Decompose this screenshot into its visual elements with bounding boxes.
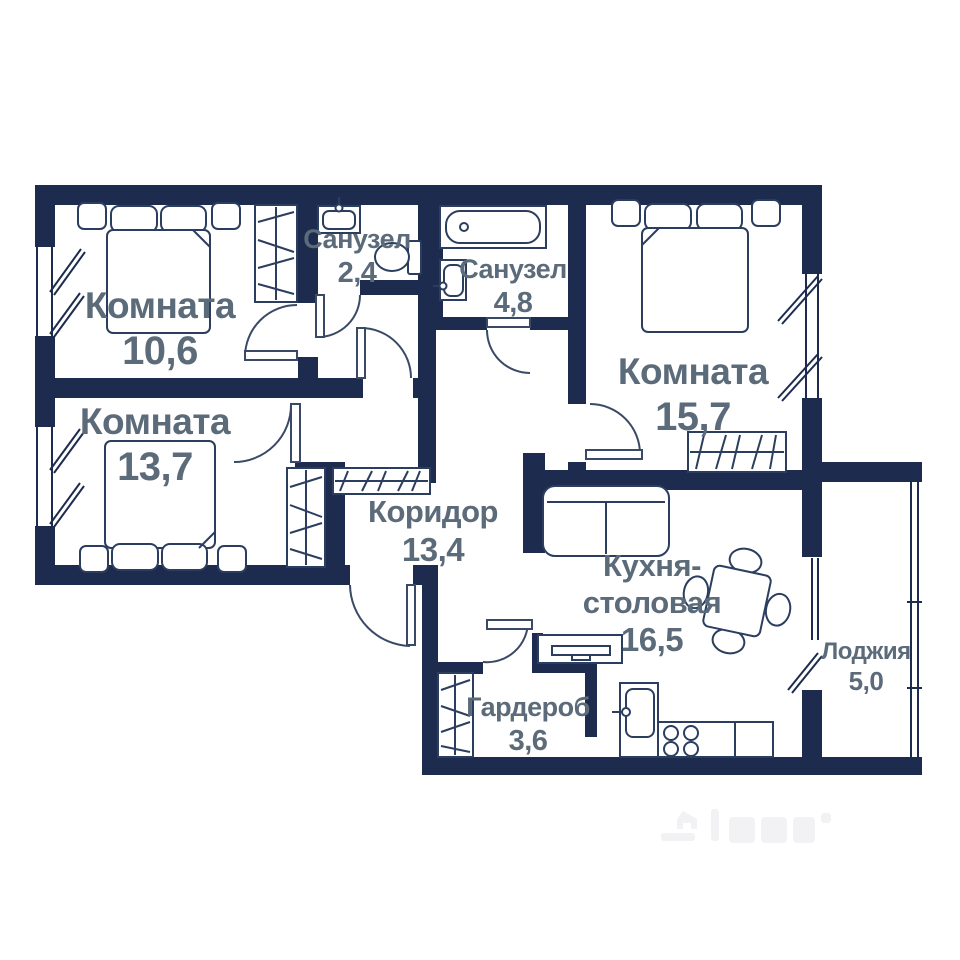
wardrobe-garderob <box>438 673 473 757</box>
wardrobe-room-13-7 <box>287 468 325 567</box>
wardrobe-corridor <box>333 468 430 494</box>
tv-stand <box>538 635 622 663</box>
bathtub-sanuzel-4-8 <box>440 206 546 248</box>
faint-logo-watermark <box>655 795 865 865</box>
floor-plan-canvas: Комната 10,6 Комната 13,7 Санузел 2,4 Са… <box>0 0 960 960</box>
wardrobe-room-10-6 <box>255 205 297 302</box>
wardrobe-room-15-7 <box>688 432 786 472</box>
toilet-sanuzel-2-4 <box>375 241 421 274</box>
sofa-kitchen <box>543 486 669 556</box>
